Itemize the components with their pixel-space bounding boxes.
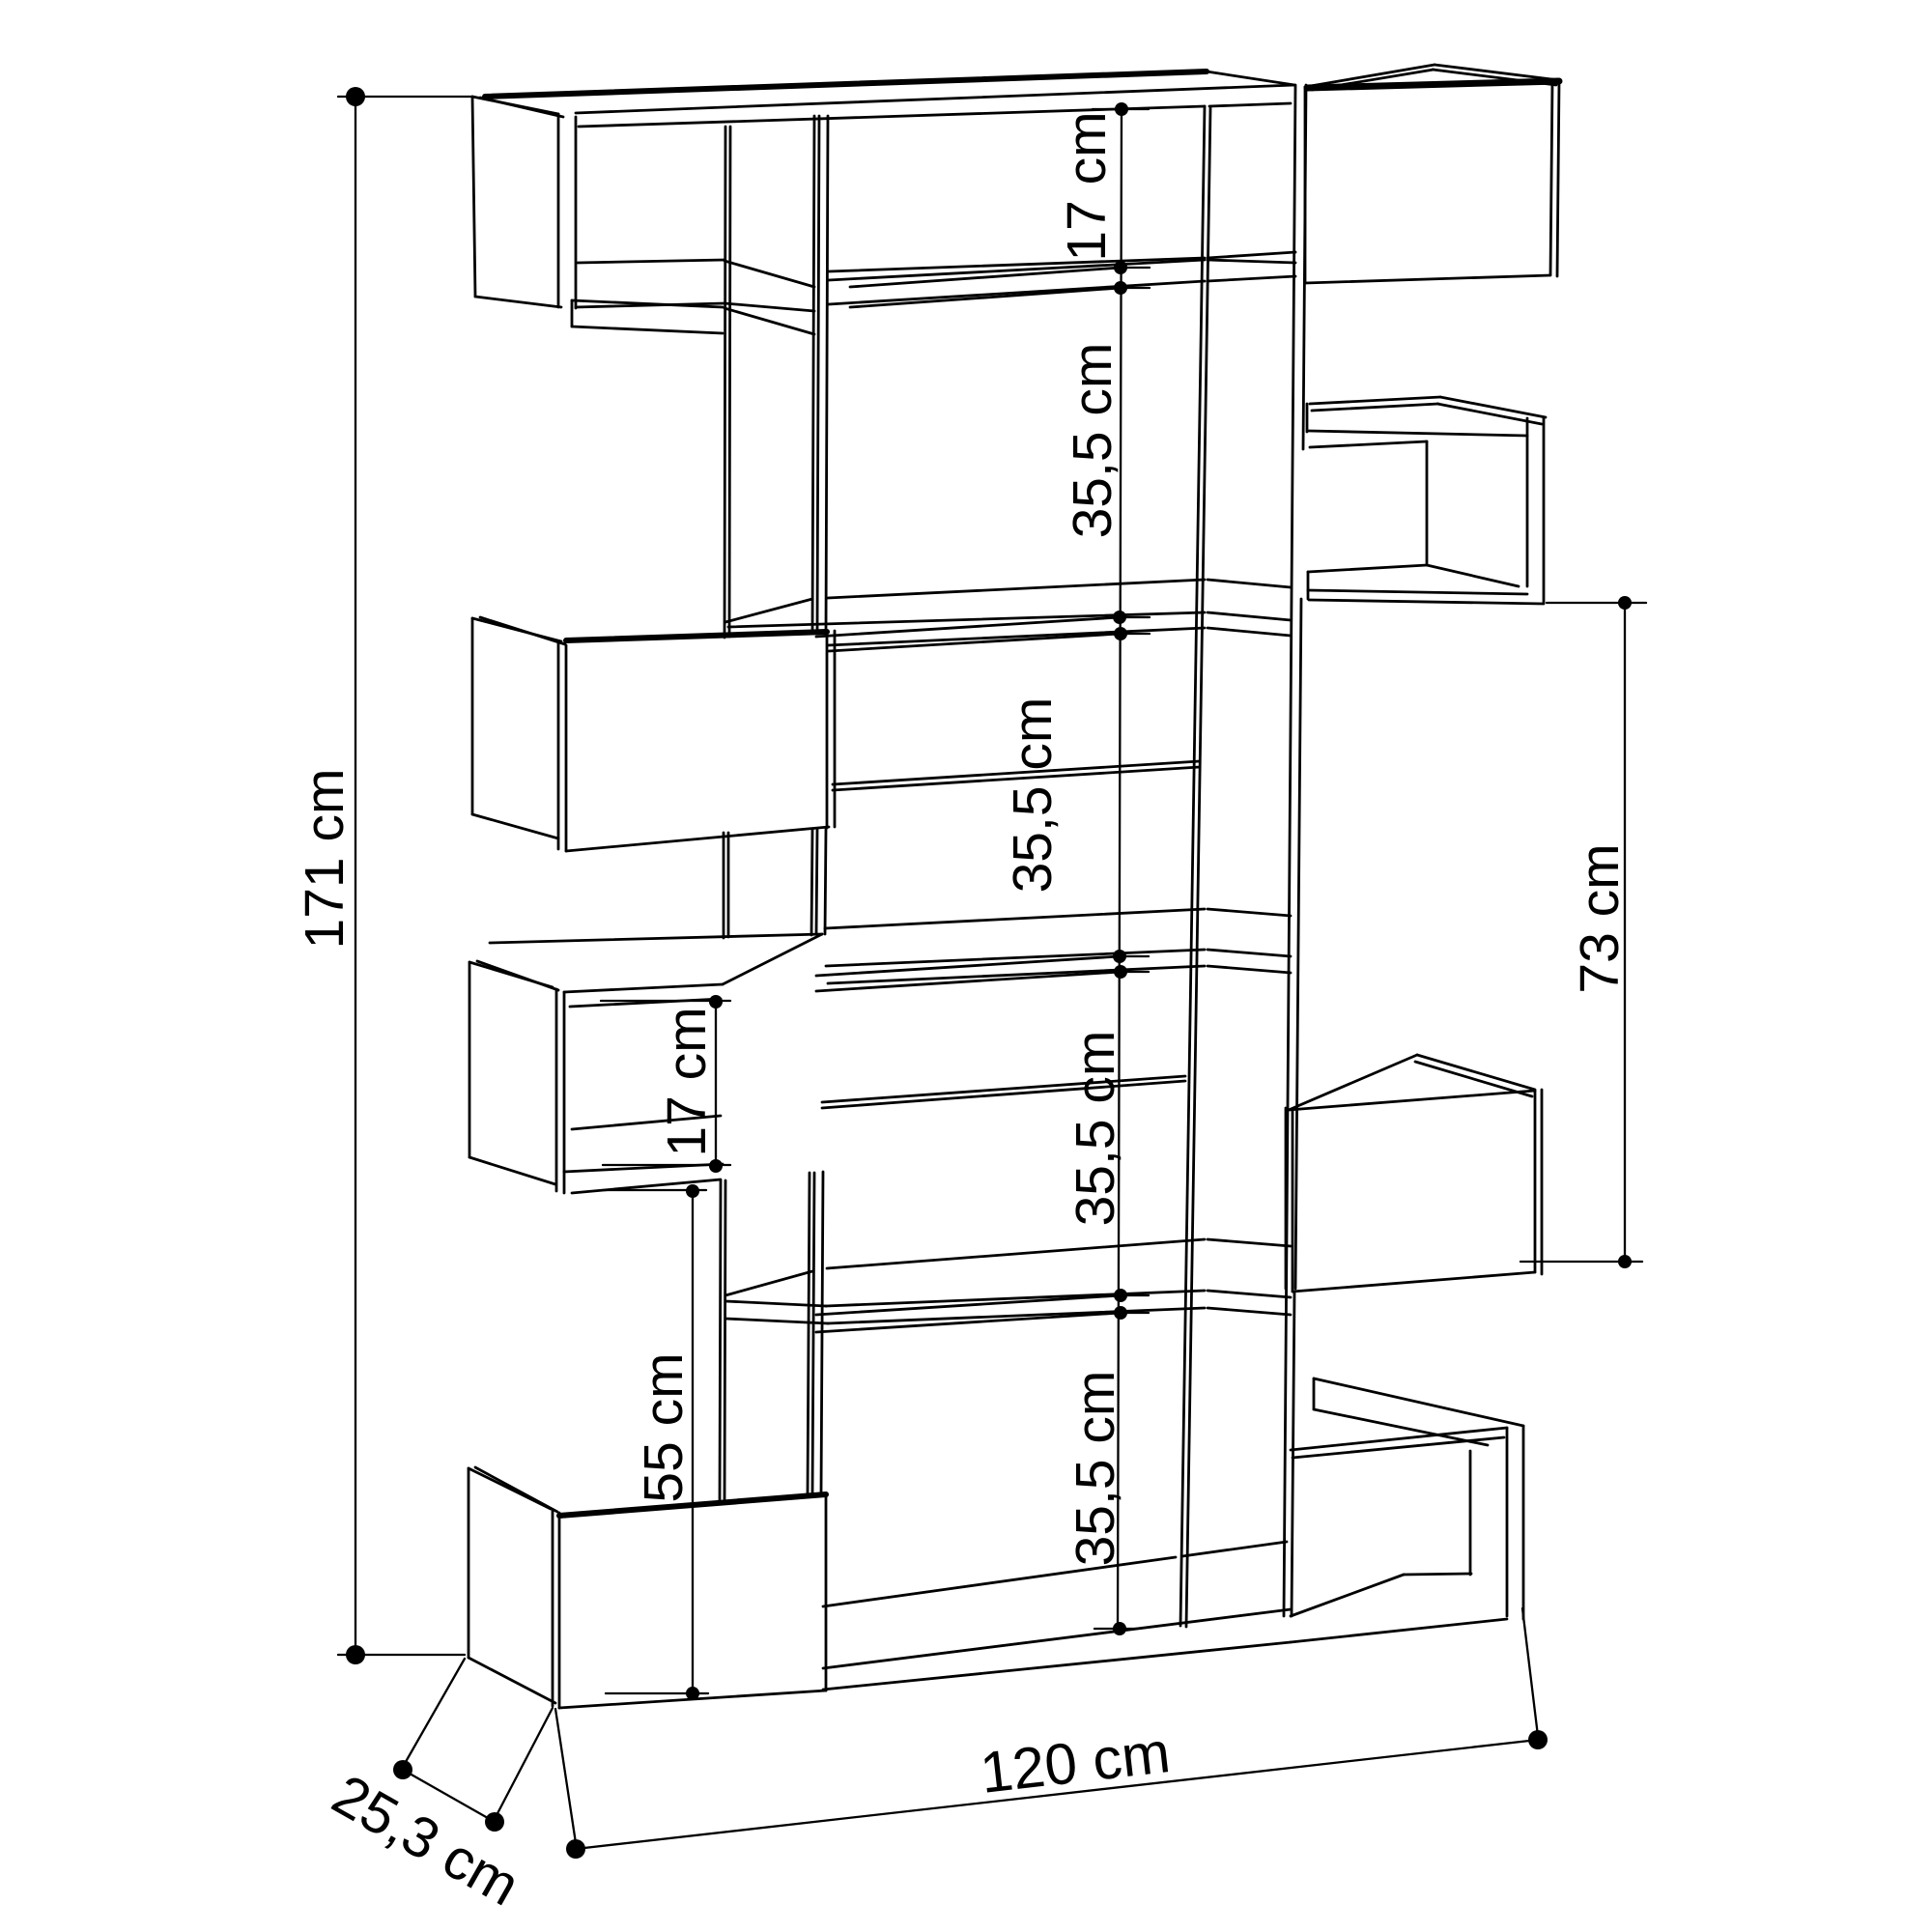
- svg-text:73 cm: 73 cm: [1569, 843, 1631, 993]
- svg-text:17 cm: 17 cm: [656, 1007, 718, 1156]
- svg-text:25,3 cm: 25,3 cm: [322, 1762, 529, 1918]
- svg-text:171 cm: 171 cm: [294, 769, 355, 950]
- svg-text:120 cm: 120 cm: [977, 1719, 1173, 1805]
- svg-text:17 cm: 17 cm: [1056, 111, 1118, 261]
- svg-text:35,5 cm: 35,5 cm: [1062, 343, 1123, 539]
- svg-text:35,5 cm: 35,5 cm: [1065, 1371, 1126, 1567]
- svg-text:35,5 cm: 35,5 cm: [1065, 1031, 1126, 1227]
- svg-text:35,5 cm: 35,5 cm: [1002, 697, 1064, 894]
- svg-text:55 cm: 55 cm: [633, 1352, 695, 1502]
